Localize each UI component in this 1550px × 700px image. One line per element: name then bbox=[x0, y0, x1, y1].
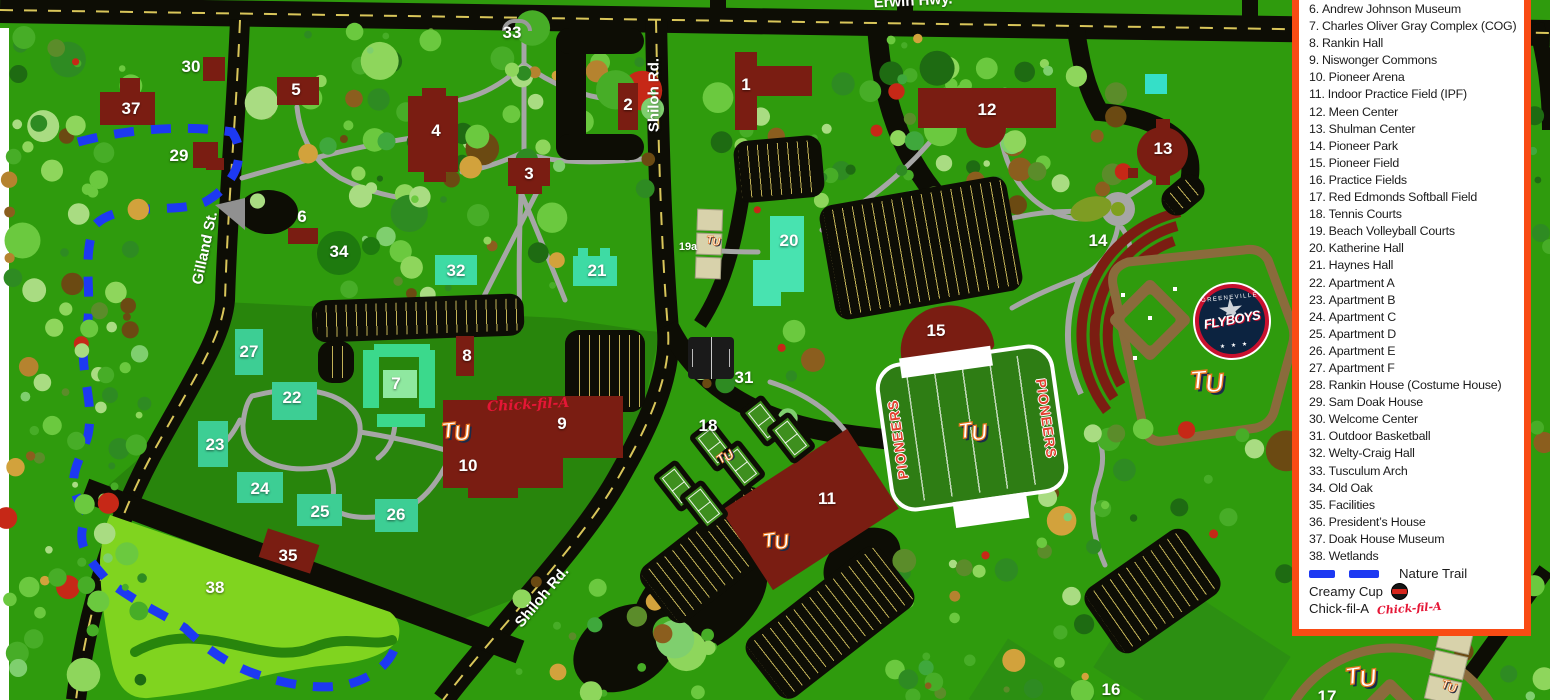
map-marker-16: 16 bbox=[1102, 680, 1121, 700]
legend-item-17: 17.Red Edmonds Softball Field bbox=[1309, 189, 1520, 206]
legend-item-22: 22.Apartment A bbox=[1309, 275, 1520, 292]
trail-dash-icon bbox=[1349, 570, 1379, 578]
map-marker-7: 7 bbox=[391, 374, 400, 394]
map-marker-2: 2 bbox=[623, 95, 632, 115]
legend-item-38: 38.Wetlands bbox=[1309, 548, 1520, 565]
map-marker-3: 3 bbox=[524, 164, 533, 184]
map-marker-4: 4 bbox=[431, 121, 440, 141]
building bbox=[578, 248, 588, 258]
building bbox=[1128, 168, 1138, 178]
tu-logo: TU bbox=[761, 528, 788, 551]
building bbox=[206, 158, 224, 170]
legend-item-24: 24.Apartment C bbox=[1309, 309, 1520, 326]
legend-item-25: 25.Apartment D bbox=[1309, 326, 1520, 343]
map-marker-32: 32 bbox=[447, 261, 466, 281]
legend-item-31: 31.Outdoor Basketball bbox=[1309, 428, 1520, 445]
map-marker-33: 33 bbox=[503, 23, 522, 43]
creamy-cup-icon bbox=[1391, 583, 1408, 600]
legend-item-33: 33.Tusculum Arch bbox=[1309, 463, 1520, 480]
legend-item-32: 32.Welty-Craig Hall bbox=[1309, 445, 1520, 462]
legend-item-36: 36.President’s House bbox=[1309, 514, 1520, 531]
parking-lot bbox=[556, 134, 644, 160]
legend-item-28: 28.Rankin House (Costume House) bbox=[1309, 377, 1520, 394]
building bbox=[288, 228, 318, 244]
map-marker-19a: 19a bbox=[679, 241, 697, 253]
trail-dash-icon bbox=[1309, 570, 1335, 578]
map-marker-31: 31 bbox=[735, 368, 754, 388]
building bbox=[753, 260, 781, 306]
building bbox=[1156, 119, 1170, 129]
building bbox=[120, 78, 140, 94]
building bbox=[362, 237, 380, 255]
building bbox=[363, 350, 379, 408]
building bbox=[1156, 175, 1170, 185]
map-marker-12: 12 bbox=[978, 100, 997, 120]
legend-nature-trail: Nature Trail bbox=[1309, 565, 1520, 583]
building bbox=[516, 184, 542, 194]
map-marker-26: 26 bbox=[387, 505, 406, 525]
map-marker-24: 24 bbox=[251, 479, 270, 499]
map-marker-35: 35 bbox=[279, 546, 298, 566]
parking-lot bbox=[318, 341, 354, 383]
map-marker-29: 29 bbox=[170, 146, 189, 166]
map-marker-13: 13 bbox=[1154, 139, 1173, 159]
map-marker-20: 20 bbox=[780, 231, 799, 251]
map-marker-10: 10 bbox=[459, 456, 478, 476]
map-marker-14: 14 bbox=[1089, 231, 1108, 251]
building bbox=[1145, 74, 1167, 94]
legend-item-10: 10.Pioneer Arena bbox=[1309, 69, 1520, 86]
legend-item-20: 20.Katherine Hall bbox=[1309, 240, 1520, 257]
legend-creamy-cup: Creamy Cup bbox=[1309, 583, 1520, 601]
creamy-cup-label: Creamy Cup bbox=[1309, 583, 1383, 601]
building bbox=[600, 248, 610, 258]
legend-item-6: 6.Andrew Johnson Museum bbox=[1309, 1, 1520, 18]
legend-item-21: 21.Haynes Hall bbox=[1309, 257, 1520, 274]
legend-item-23: 23.Apartment B bbox=[1309, 292, 1520, 309]
map-marker-21: 21 bbox=[588, 261, 607, 281]
nature-trail-label: Nature Trail bbox=[1399, 565, 1467, 583]
legend-item-16: 16.Practice Fields bbox=[1309, 172, 1520, 189]
legend-item-9: 9.Niswonger Commons bbox=[1309, 52, 1520, 69]
legend-item-8: 8.Rankin Hall bbox=[1309, 35, 1520, 52]
building bbox=[377, 414, 425, 427]
legend-item-37: 37.Doak House Museum bbox=[1309, 531, 1520, 548]
legend-item-30: 30.Welcome Center bbox=[1309, 411, 1520, 428]
legend-item-34: 34.Old Oak bbox=[1309, 480, 1520, 497]
campus-map: PIONEERS PIONEERS GREENEVILLE ★ FLYBOYS … bbox=[0, 0, 1550, 700]
legend-item-18: 18.Tennis Courts bbox=[1309, 206, 1520, 223]
map-marker-23: 23 bbox=[206, 435, 225, 455]
parking-lot bbox=[311, 293, 524, 342]
legend-item-7: 7.Charles Oliver Gray Complex (COG) bbox=[1309, 18, 1520, 35]
chick-fil-a-label: Chick-fil-A bbox=[1309, 600, 1369, 618]
tu-logo: TU bbox=[1189, 365, 1223, 394]
building bbox=[422, 88, 446, 98]
basketball-court bbox=[688, 337, 734, 379]
map-marker-30: 30 bbox=[182, 57, 201, 77]
map-marker-37: 37 bbox=[122, 99, 141, 119]
building bbox=[419, 350, 435, 408]
map-marker-22: 22 bbox=[283, 388, 302, 408]
map-marker-18: 18 bbox=[699, 416, 718, 436]
map-marker-25: 25 bbox=[311, 502, 330, 522]
map-marker-5: 5 bbox=[291, 80, 300, 100]
tu-logo: TU bbox=[1344, 662, 1377, 690]
tu-logo: TU bbox=[706, 236, 720, 247]
tu-logo: TU bbox=[440, 418, 469, 443]
building bbox=[424, 170, 446, 182]
parking-lot bbox=[732, 134, 825, 203]
building bbox=[468, 484, 518, 498]
legend-item-27: 27.Apartment F bbox=[1309, 360, 1520, 377]
map-marker-17: 17 bbox=[1318, 687, 1337, 700]
map-marker-11: 11 bbox=[818, 489, 836, 509]
map-marker-1: 1 bbox=[741, 75, 750, 95]
tu-logo: TU bbox=[1441, 678, 1458, 692]
legend-item-35: 35.Facilities bbox=[1309, 497, 1520, 514]
tu-logo: TU bbox=[957, 417, 987, 443]
legend-item-12: 12.Meen Center bbox=[1309, 104, 1520, 121]
legend-list: 6.Andrew Johnson Museum7.Charles Oliver … bbox=[1309, 1, 1520, 565]
legend-chick-fil-a: Chick-fil-A Chick-fil-A bbox=[1309, 600, 1520, 618]
legend-item-13: 13.Shulman Center bbox=[1309, 121, 1520, 138]
legend-item-11: 11.Indoor Practice Field (IPF) bbox=[1309, 86, 1520, 103]
chick-fil-a-logo: Chick-fil-A bbox=[1377, 598, 1443, 620]
map-marker-27: 27 bbox=[240, 342, 259, 362]
legend-item-14: 14.Pioneer Park bbox=[1309, 138, 1520, 155]
legend-panel: 6.Andrew Johnson Museum7.Charles Oliver … bbox=[1292, 0, 1531, 636]
building bbox=[757, 66, 812, 96]
legend-item-15: 15.Pioneer Field bbox=[1309, 155, 1520, 172]
map-marker-34: 34 bbox=[330, 242, 349, 262]
building bbox=[374, 344, 430, 357]
map-marker-38: 38 bbox=[206, 578, 225, 598]
map-marker-15: 15 bbox=[927, 321, 946, 341]
legend-item-26: 26.Apartment E bbox=[1309, 343, 1520, 360]
legend-item-29: 29.Sam Doak House bbox=[1309, 394, 1520, 411]
map-marker-9: 9 bbox=[557, 414, 566, 434]
map-marker-8: 8 bbox=[462, 346, 471, 366]
building bbox=[203, 57, 225, 81]
legend-item-19: 19.Beach Volleyball Courts bbox=[1309, 223, 1520, 240]
road-label-shiloh-rd-top: Shiloh Rd. bbox=[646, 58, 663, 132]
map-marker-6: 6 bbox=[297, 207, 306, 227]
parking-lot bbox=[556, 28, 644, 54]
